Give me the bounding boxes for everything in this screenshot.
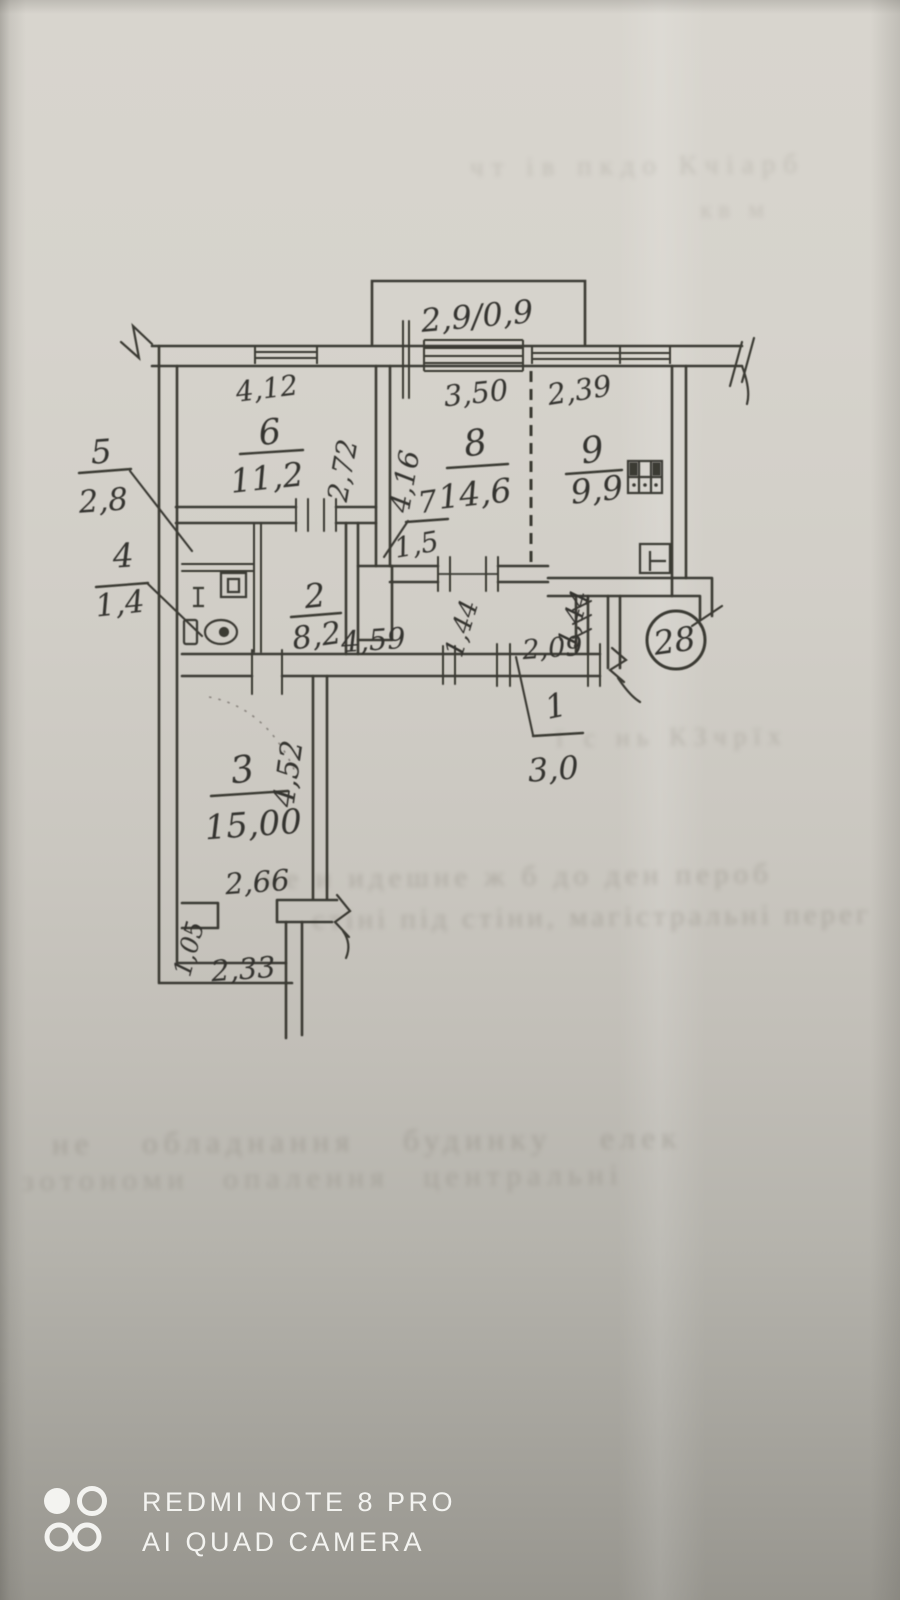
room4-number: 4 [110,535,135,575]
room3-area: 15,00 [203,802,303,849]
room3-number: 3 [228,747,257,793]
room2-area: 8,2 [290,615,344,658]
floor-plan-photo: чт ів пкдо Кчіарб кв м ї с нь КЗчрїх ме … [0,0,900,1600]
room8-area: 14,6 [436,470,513,516]
dim-label: 3,50 [442,373,510,414]
toilet-icon [184,620,237,644]
room1-area: 3,0 [527,748,580,789]
dim-label: 1,44 [440,597,486,661]
dim-label: 4,12 [233,368,300,408]
room5-number: 5 [89,431,113,471]
room6-number: 6 [257,412,283,454]
room5-area: 2,8 [76,481,129,520]
balcony-dim-label: 2,9/0,9 [418,292,534,340]
room2-number: 2 [301,575,327,616]
kitchen-sink-icon [640,544,670,573]
dim-label: 2,39 [544,368,614,412]
room9-number: 9 [578,429,606,473]
dim-label: 2,33 [209,950,277,988]
camera-watermark: REDMI NOTE 8 PRO AI QUAD CAMERA [40,1486,456,1558]
room1-number: 1 [541,684,570,727]
room4-area: 1,4 [94,584,147,625]
room9-area: 9,9 [569,467,625,511]
dim-label: 4,59 [339,621,407,659]
room7-area: 1,5 [392,525,442,565]
room8-number: 8 [461,422,489,466]
bath-sink-icon [193,573,246,606]
watermark-device-name: REDMI NOTE 8 PRO [142,1487,456,1518]
apartment-number: 28 [650,618,698,663]
dim-label: 1,05 [168,918,210,979]
dim-label: 2,72 [321,437,364,505]
room6-area: 11,2 [228,454,305,500]
watermark-camera-name: AI QUAD CAMERA [142,1527,456,1558]
dim-label: 4,52 [266,738,310,810]
xiaomi-dual-circle-infinity-icon [40,1486,122,1558]
dim-label: 2,66 [223,863,291,901]
stove-icon [628,461,662,493]
floor-plan-drawing: 2,9/0,9 4,12 3,50 2,39 6 11,2 2,72 4,16 … [0,0,900,1600]
